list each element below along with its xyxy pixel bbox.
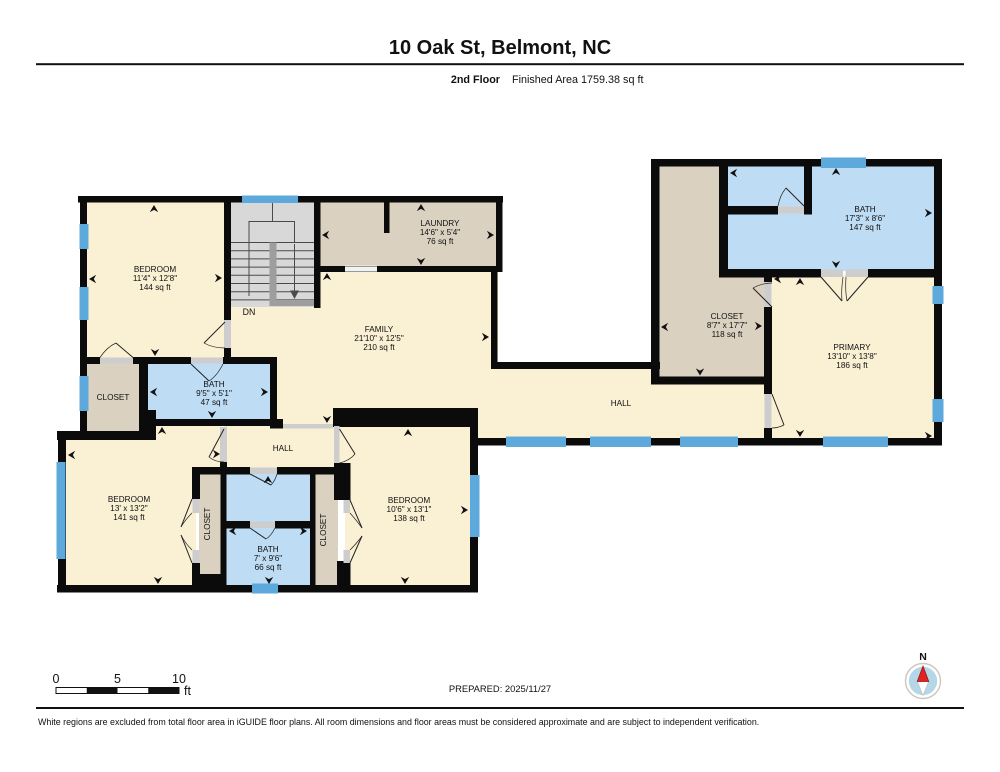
svg-text:PRIMARY: PRIMARY — [833, 343, 871, 352]
svg-text:CLOSET: CLOSET — [97, 393, 130, 402]
svg-text:BATH: BATH — [203, 380, 224, 389]
svg-text:11'4" x 12'8": 11'4" x 12'8" — [133, 274, 177, 283]
svg-text:14'6" x 5'4": 14'6" x 5'4" — [420, 228, 460, 237]
svg-text:7' x 9'6": 7' x 9'6" — [254, 554, 282, 563]
svg-text:Finished Area 1759.38 sq ft: Finished Area 1759.38 sq ft — [512, 74, 643, 86]
svg-text:76 sq ft: 76 sq ft — [427, 237, 455, 246]
svg-text:21'10" x 12'5": 21'10" x 12'5" — [354, 334, 404, 343]
svg-text:ft: ft — [184, 684, 191, 698]
svg-text:186 sq ft: 186 sq ft — [836, 361, 868, 370]
svg-text:CLOSET: CLOSET — [203, 508, 212, 541]
svg-text:BEDROOM: BEDROOM — [388, 496, 430, 505]
svg-text:PREPARED: 2025/11/27: PREPARED: 2025/11/27 — [449, 683, 551, 694]
svg-text:N: N — [919, 651, 927, 663]
svg-text:144 sq ft: 144 sq ft — [139, 283, 171, 292]
svg-text:DN: DN — [243, 307, 256, 317]
svg-text:FAMILY: FAMILY — [365, 325, 394, 334]
svg-text:66 sq ft: 66 sq ft — [255, 563, 283, 572]
svg-text:White regions are excluded fro: White regions are excluded from total fl… — [38, 717, 759, 727]
svg-text:210 sq ft: 210 sq ft — [363, 343, 395, 352]
svg-text:HALL: HALL — [611, 399, 632, 408]
svg-text:BEDROOM: BEDROOM — [108, 495, 150, 504]
svg-text:118 sq ft: 118 sq ft — [712, 330, 744, 339]
svg-text:0: 0 — [53, 672, 60, 686]
svg-text:9'5" x 5'1": 9'5" x 5'1" — [196, 389, 232, 398]
svg-text:LAUNDRY: LAUNDRY — [421, 219, 461, 228]
svg-text:138 sq ft: 138 sq ft — [393, 514, 425, 523]
svg-text:8'7" x 17'7": 8'7" x 17'7" — [707, 321, 747, 330]
svg-text:17'3" x 8'6": 17'3" x 8'6" — [845, 214, 885, 223]
svg-text:141 sq ft: 141 sq ft — [113, 513, 145, 522]
svg-text:10 Oak St, Belmont, NC: 10 Oak St, Belmont, NC — [389, 37, 611, 59]
svg-text:2nd Floor: 2nd Floor — [451, 74, 501, 86]
svg-text:13'10" x 13'8": 13'10" x 13'8" — [827, 352, 877, 361]
svg-text:5: 5 — [114, 672, 121, 686]
svg-text:CLOSET: CLOSET — [319, 514, 328, 547]
svg-text:HALL: HALL — [273, 444, 294, 453]
svg-text:47 sq ft: 47 sq ft — [201, 398, 229, 407]
svg-text:BEDROOM: BEDROOM — [134, 265, 176, 274]
svg-text:BATH: BATH — [854, 205, 875, 214]
svg-text:13' x 13'2": 13' x 13'2" — [110, 504, 148, 513]
svg-text:10'6" x 13'1": 10'6" x 13'1" — [387, 505, 432, 514]
svg-text:147 sq ft: 147 sq ft — [849, 223, 881, 232]
svg-text:CLOSET: CLOSET — [711, 312, 744, 321]
svg-text:BATH: BATH — [257, 545, 278, 554]
